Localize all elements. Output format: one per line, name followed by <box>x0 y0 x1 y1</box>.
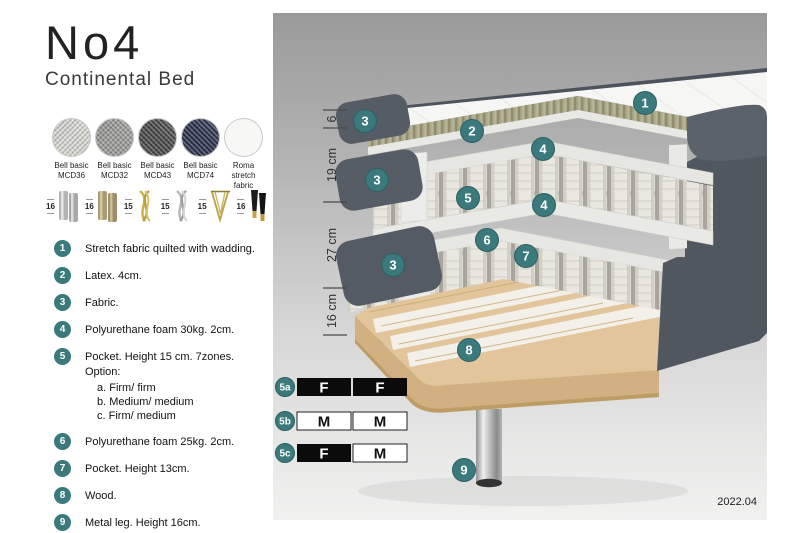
leg-height-value: 16 <box>46 200 55 213</box>
spec-item-text: Pocket. Height 15 cm. 7zones. Option: a.… <box>85 348 269 423</box>
spec-item-number: 9 <box>54 514 71 531</box>
spec-item-text-main: Pocket. Height 15 cm. 7zones. Option: <box>85 351 234 378</box>
svg-text:1: 1 <box>641 96 648 111</box>
firmness-cell-right: M <box>374 414 387 431</box>
spec-item-number: 7 <box>54 460 71 477</box>
spec-option: b. Medium/ medium <box>97 395 269 409</box>
fabric-name: Roma <box>222 161 265 171</box>
spec-item: 9 Metal leg. Height 16cm. <box>54 514 269 531</box>
fabric-swatch: Bell basic MCD43 <box>136 118 179 191</box>
fabric-swatches: Bell basic MCD36 Bell basic MCD32 Bell b… <box>50 118 265 191</box>
svg-text:3: 3 <box>373 173 380 188</box>
fabric-swatch: Bell basic MCD32 <box>93 118 136 191</box>
leg-option: 16 <box>46 188 82 224</box>
spec-item: 5 Pocket. Height 15 cm. 7zones. Option: … <box>54 348 269 423</box>
spec-item-text: Latex. 4cm. <box>85 267 142 284</box>
measurement-label-27cm: 27 cm <box>325 228 339 262</box>
measurement-label-16cm: 16 cm <box>325 294 339 328</box>
callout-badge-4-lower: 4 <box>533 194 556 217</box>
fabric-name: Bell basic <box>97 161 131 171</box>
fabric-code: MCD74 <box>183 171 217 181</box>
version-date: 2022.04 <box>717 496 757 508</box>
twisted-gold-legs-icon <box>134 188 158 224</box>
spec-item-text: Pocket. Height 13cm. <box>85 460 190 477</box>
fabric-code: MCD36 <box>54 171 88 181</box>
svg-text:3: 3 <box>389 258 396 273</box>
svg-text:2: 2 <box>468 124 475 139</box>
leg-option: 16 <box>237 188 271 224</box>
fabric-name: Bell basic <box>183 161 217 171</box>
leg-option: 15 <box>124 188 158 224</box>
svg-text:3: 3 <box>361 114 368 129</box>
firmness-row-5b: 5b M M <box>276 412 408 431</box>
spec-item-number: 1 <box>54 240 71 257</box>
firmness-cell-right: M <box>374 446 387 463</box>
leg-height: 15 <box>161 199 170 214</box>
fabric-swatch-circle <box>181 118 220 157</box>
fabric-swatch: Roma stretch fabric <box>222 118 265 191</box>
fabric-swatch: Bell basic MCD74 <box>179 118 222 191</box>
spec-item-number: 6 <box>54 433 71 450</box>
fabric-code: MCD43 <box>140 171 174 181</box>
callout-badge-6: 6 <box>476 229 499 252</box>
leg-options: 16 16 15 15 <box>46 188 273 224</box>
spec-item-text: Polyurethane foam 30kg. 2cm. <box>85 321 234 338</box>
leg-height-value: 15 <box>124 200 133 213</box>
spec-item: 3 Fabric. <box>54 294 269 311</box>
firmness-cell-right: F <box>375 380 384 397</box>
title-block: No4 Continental Bed <box>45 18 195 91</box>
firmness-options: 5a F F 5b M M 5c F M <box>276 378 408 463</box>
svg-text:7: 7 <box>522 249 529 264</box>
spec-option: a. Firm/ firm <box>97 381 269 395</box>
black-gold-tip-legs-icon <box>246 188 270 224</box>
spec-item-text: Metal leg. Height 16cm. <box>85 514 201 531</box>
metal-leg-front <box>476 409 502 487</box>
leg-height-value: 16 <box>237 200 246 213</box>
spec-item-number: 4 <box>54 321 71 338</box>
spec-item-text: Wood. <box>85 487 117 504</box>
callout-badge-2: 2 <box>461 120 484 143</box>
firmness-label: 5a <box>279 383 291 394</box>
spec-item-options: a. Firm/ firm b. Medium/ medium c. Firm/… <box>85 381 269 423</box>
svg-text:5: 5 <box>464 191 471 206</box>
callout-badge-3-bottom: 3 <box>382 254 405 277</box>
fabric-swatch-circle <box>224 118 263 157</box>
firmness-label: 5b <box>279 417 291 428</box>
svg-text:8: 8 <box>465 343 472 358</box>
spec-item: 4 Polyurethane foam 30kg. 2cm. <box>54 321 269 338</box>
fabric-swatch-label: Bell basic MCD74 <box>183 161 217 181</box>
spec-list: 1 Stretch fabric quilted with wadding. 2… <box>54 240 269 533</box>
leg-height: 15 <box>124 199 133 214</box>
svg-text:4: 4 <box>540 198 548 213</box>
leg-height: 16 <box>46 199 55 214</box>
firmness-row-5c: 5c F M <box>276 444 408 463</box>
fabric-swatch-label: Bell basic MCD32 <box>97 161 131 181</box>
spec-item: 8 Wood. <box>54 487 269 504</box>
spec-item: 1 Stretch fabric quilted with wadding. <box>54 240 269 257</box>
leg-height-value: 16 <box>85 200 94 213</box>
spec-item-text: Fabric. <box>85 294 119 311</box>
spec-option: c. Firm/ medium <box>97 409 269 423</box>
fabric-swatch: Bell basic MCD36 <box>50 118 93 191</box>
cutaway-illustration-panel: 6 19 cm 27 cm 16 cm 1 3 2 4 3 5 4 6 7 3 … <box>273 13 767 520</box>
leg-height-value: 15 <box>198 200 207 213</box>
callout-badge-4-upper: 4 <box>532 138 555 161</box>
leg-option: 16 <box>85 188 121 224</box>
fabric-swatch-circle <box>52 118 91 157</box>
spec-item-number: 3 <box>54 294 71 311</box>
fabric-swatch-label: Bell basic MCD43 <box>140 161 174 181</box>
firmness-cell-left: F <box>319 446 328 463</box>
spec-item-text: Stretch fabric quilted with wadding. <box>85 240 255 257</box>
callout-badge-9: 9 <box>453 459 476 482</box>
svg-text:6: 6 <box>483 233 490 248</box>
leg-height: 15 <box>198 199 207 214</box>
bed-cutaway-drawing: 6 19 cm 27 cm 16 cm 1 3 2 4 3 5 4 6 7 3 … <box>273 13 767 520</box>
callout-badge-3-top: 3 <box>354 110 377 133</box>
svg-text:4: 4 <box>539 142 547 157</box>
spec-item-number: 5 <box>54 348 71 365</box>
firmness-label: 5c <box>279 449 291 460</box>
fabric-name: Bell basic <box>140 161 174 171</box>
fabric-swatch-label: Bell basic MCD36 <box>54 161 88 181</box>
leg-height: 16 <box>85 199 94 214</box>
leg-height: 16 <box>237 199 246 214</box>
firmness-cell-left: F <box>319 380 328 397</box>
fabric-name: Bell basic <box>54 161 88 171</box>
callout-badge-7: 7 <box>515 245 538 268</box>
spec-item-number: 2 <box>54 267 71 284</box>
svg-text:9: 9 <box>460 463 467 478</box>
spec-item-number: 8 <box>54 487 71 504</box>
spec-item: 6 Polyurethane foam 25kg. 2cm. <box>54 433 269 450</box>
hairpin-gold-leg-icon <box>208 188 234 224</box>
leg-option: 15 <box>161 188 195 224</box>
fabric-code: MCD32 <box>97 171 131 181</box>
product-name: No4 <box>45 18 195 67</box>
product-subtitle: Continental Bed <box>45 69 195 91</box>
callout-badge-5: 5 <box>457 187 480 210</box>
firmness-cell-left: M <box>318 414 331 431</box>
spec-item: 7 Pocket. Height 13cm. <box>54 460 269 477</box>
measurement-label-6: 6 <box>325 115 339 122</box>
fabric-swatch-label: Roma stretch fabric <box>222 161 265 191</box>
product-sheet: No4 Continental Bed Bell basic MCD36 Bel… <box>0 0 800 533</box>
leg-option: 15 <box>198 188 234 224</box>
fabric-swatch-circle <box>138 118 177 157</box>
spec-item: 2 Latex. 4cm. <box>54 267 269 284</box>
callout-badge-1: 1 <box>634 92 657 115</box>
leg-height-value: 15 <box>161 200 170 213</box>
fabric-swatch-circle <box>95 118 134 157</box>
spec-item-text: Polyurethane foam 25kg. 2cm. <box>85 433 234 450</box>
callout-badge-8: 8 <box>458 339 481 362</box>
callout-badge-3-mid: 3 <box>366 169 389 192</box>
firmness-row-5a: 5a F F <box>276 378 408 397</box>
twisted-silver-legs-icon <box>171 188 195 224</box>
cylinder-silver-legs-icon <box>56 188 82 224</box>
measurement-label-19cm: 19 cm <box>325 148 339 182</box>
floor-shadow <box>358 476 688 506</box>
cylinder-brass-legs-icon <box>95 188 121 224</box>
